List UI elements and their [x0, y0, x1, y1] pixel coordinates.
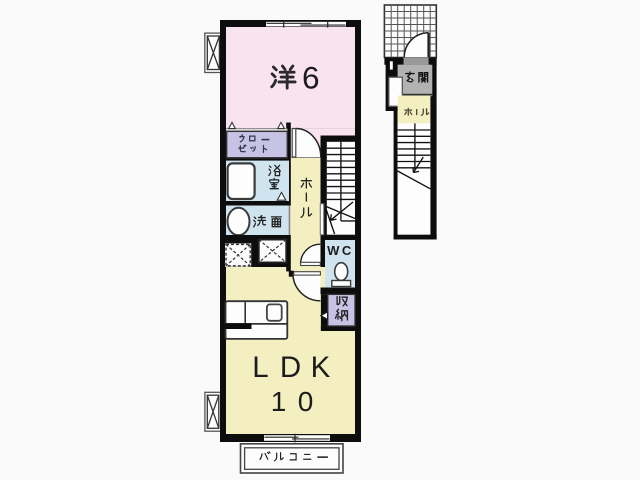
- svg-text:K: K: [311, 351, 331, 384]
- svg-text:L: L: [252, 351, 268, 384]
- svg-text:0: 0: [298, 386, 314, 417]
- svg-text:WC: WC: [327, 243, 354, 258]
- svg-text:6: 6: [302, 60, 320, 96]
- svg-text:D: D: [280, 351, 301, 384]
- svg-text:1: 1: [271, 386, 287, 417]
